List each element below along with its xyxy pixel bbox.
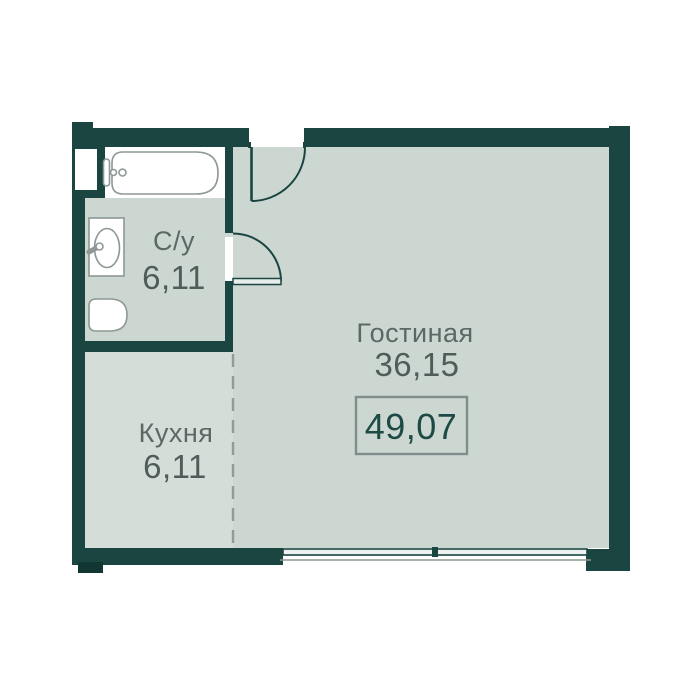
bathtub-drain (119, 169, 126, 176)
wall-bottom-step (78, 562, 103, 573)
bathroom-label: С/у (153, 226, 195, 256)
sink-icon (89, 218, 124, 276)
living-label: Гостиная (356, 318, 473, 348)
entry-jamb-right (303, 142, 306, 148)
floor-plan: С/у 6,11 Кухня 6,11 Гостиная 36,15 49,07 (0, 0, 700, 700)
wall-left (72, 128, 85, 565)
total-area-value: 49,07 (365, 406, 458, 447)
wall-niche (75, 149, 97, 190)
kitchen-area: 6,11 (143, 448, 207, 485)
wall-bathroom-bottom (85, 341, 233, 352)
bathroom-door-jamb (225, 233, 233, 237)
window-mullion (432, 547, 438, 557)
bathtub-icon (104, 152, 219, 194)
bathtub-spout (111, 170, 117, 176)
bathtub-outline (112, 152, 218, 194)
toilet-outline (89, 299, 127, 331)
bathroom-area: 6,11 (142, 259, 206, 296)
living-area: 36,15 (374, 346, 459, 383)
sink-faucet (96, 243, 103, 250)
total-area-box: 49,07 (356, 397, 467, 454)
floor-plan-canvas: С/у 6,11 Кухня 6,11 Гостиная 36,15 49,07 (0, 0, 700, 700)
wall-bathroom-right-upper (225, 147, 233, 237)
bathtub-faucet (104, 159, 110, 186)
wall-right (609, 126, 630, 571)
toilet-icon (89, 299, 127, 331)
kitchen-label: Кухня (139, 418, 214, 448)
wall-top-left (72, 128, 249, 147)
wall-top-right (304, 128, 630, 147)
bathroom-door-leaf (233, 279, 281, 285)
window (280, 547, 591, 560)
wall-bottom-left (72, 548, 283, 565)
wall-corner-bottom-right (586, 549, 630, 571)
